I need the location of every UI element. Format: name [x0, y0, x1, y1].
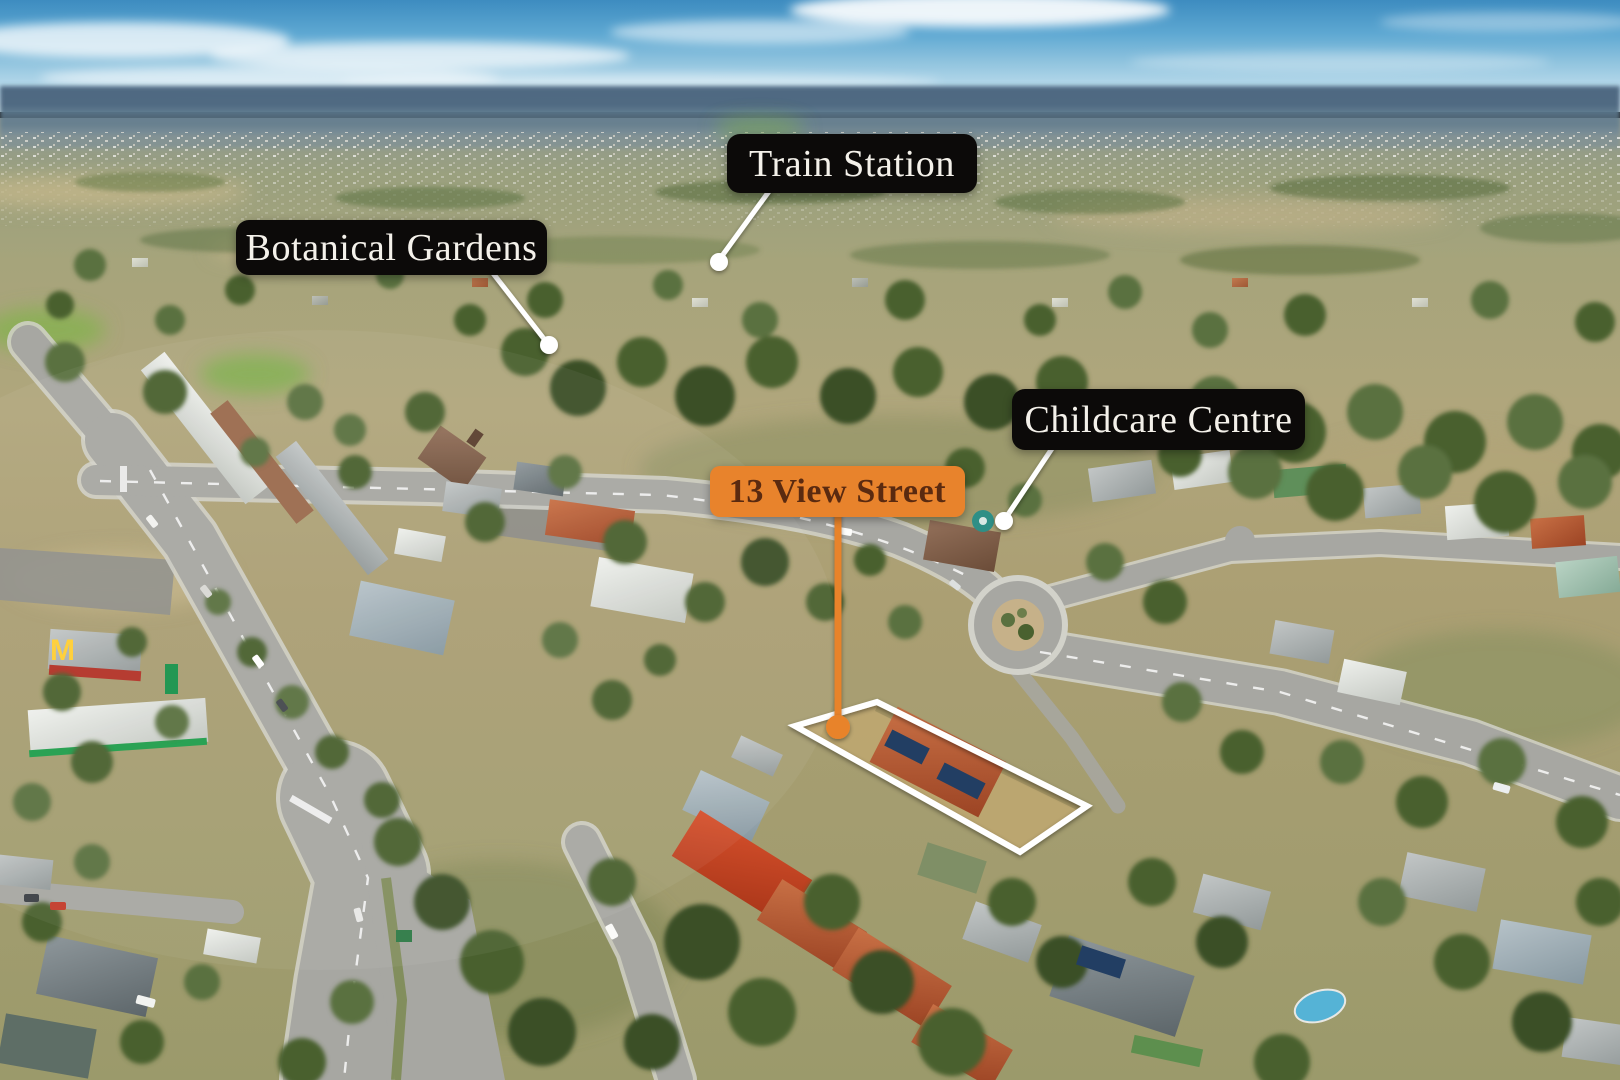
childcare-centre-leader — [1005, 447, 1053, 519]
label-botanical-gardens: Botanical Gardens — [236, 220, 547, 275]
leader-lines — [492, 190, 1053, 722]
label-train-station: Train Station — [727, 134, 977, 193]
aerial-property-photo: M — [0, 0, 1620, 1080]
label-childcare-centre: Childcare Centre — [1012, 389, 1305, 450]
childcare-centre-dot — [995, 512, 1013, 530]
label-childcare-centre-text: Childcare Centre — [1024, 398, 1292, 442]
label-train-station-text: Train Station — [749, 142, 955, 186]
label-property-address-text: 13 View Street — [729, 473, 946, 511]
label-botanical-gardens-text: Botanical Gardens — [246, 226, 538, 270]
botanical-gardens-leader — [492, 272, 548, 344]
label-property-address: 13 View Street — [710, 466, 965, 517]
train-station-leader — [719, 190, 770, 260]
botanical-gardens-dot — [540, 336, 558, 354]
train-station-dot — [710, 253, 728, 271]
address-dot — [826, 715, 850, 739]
